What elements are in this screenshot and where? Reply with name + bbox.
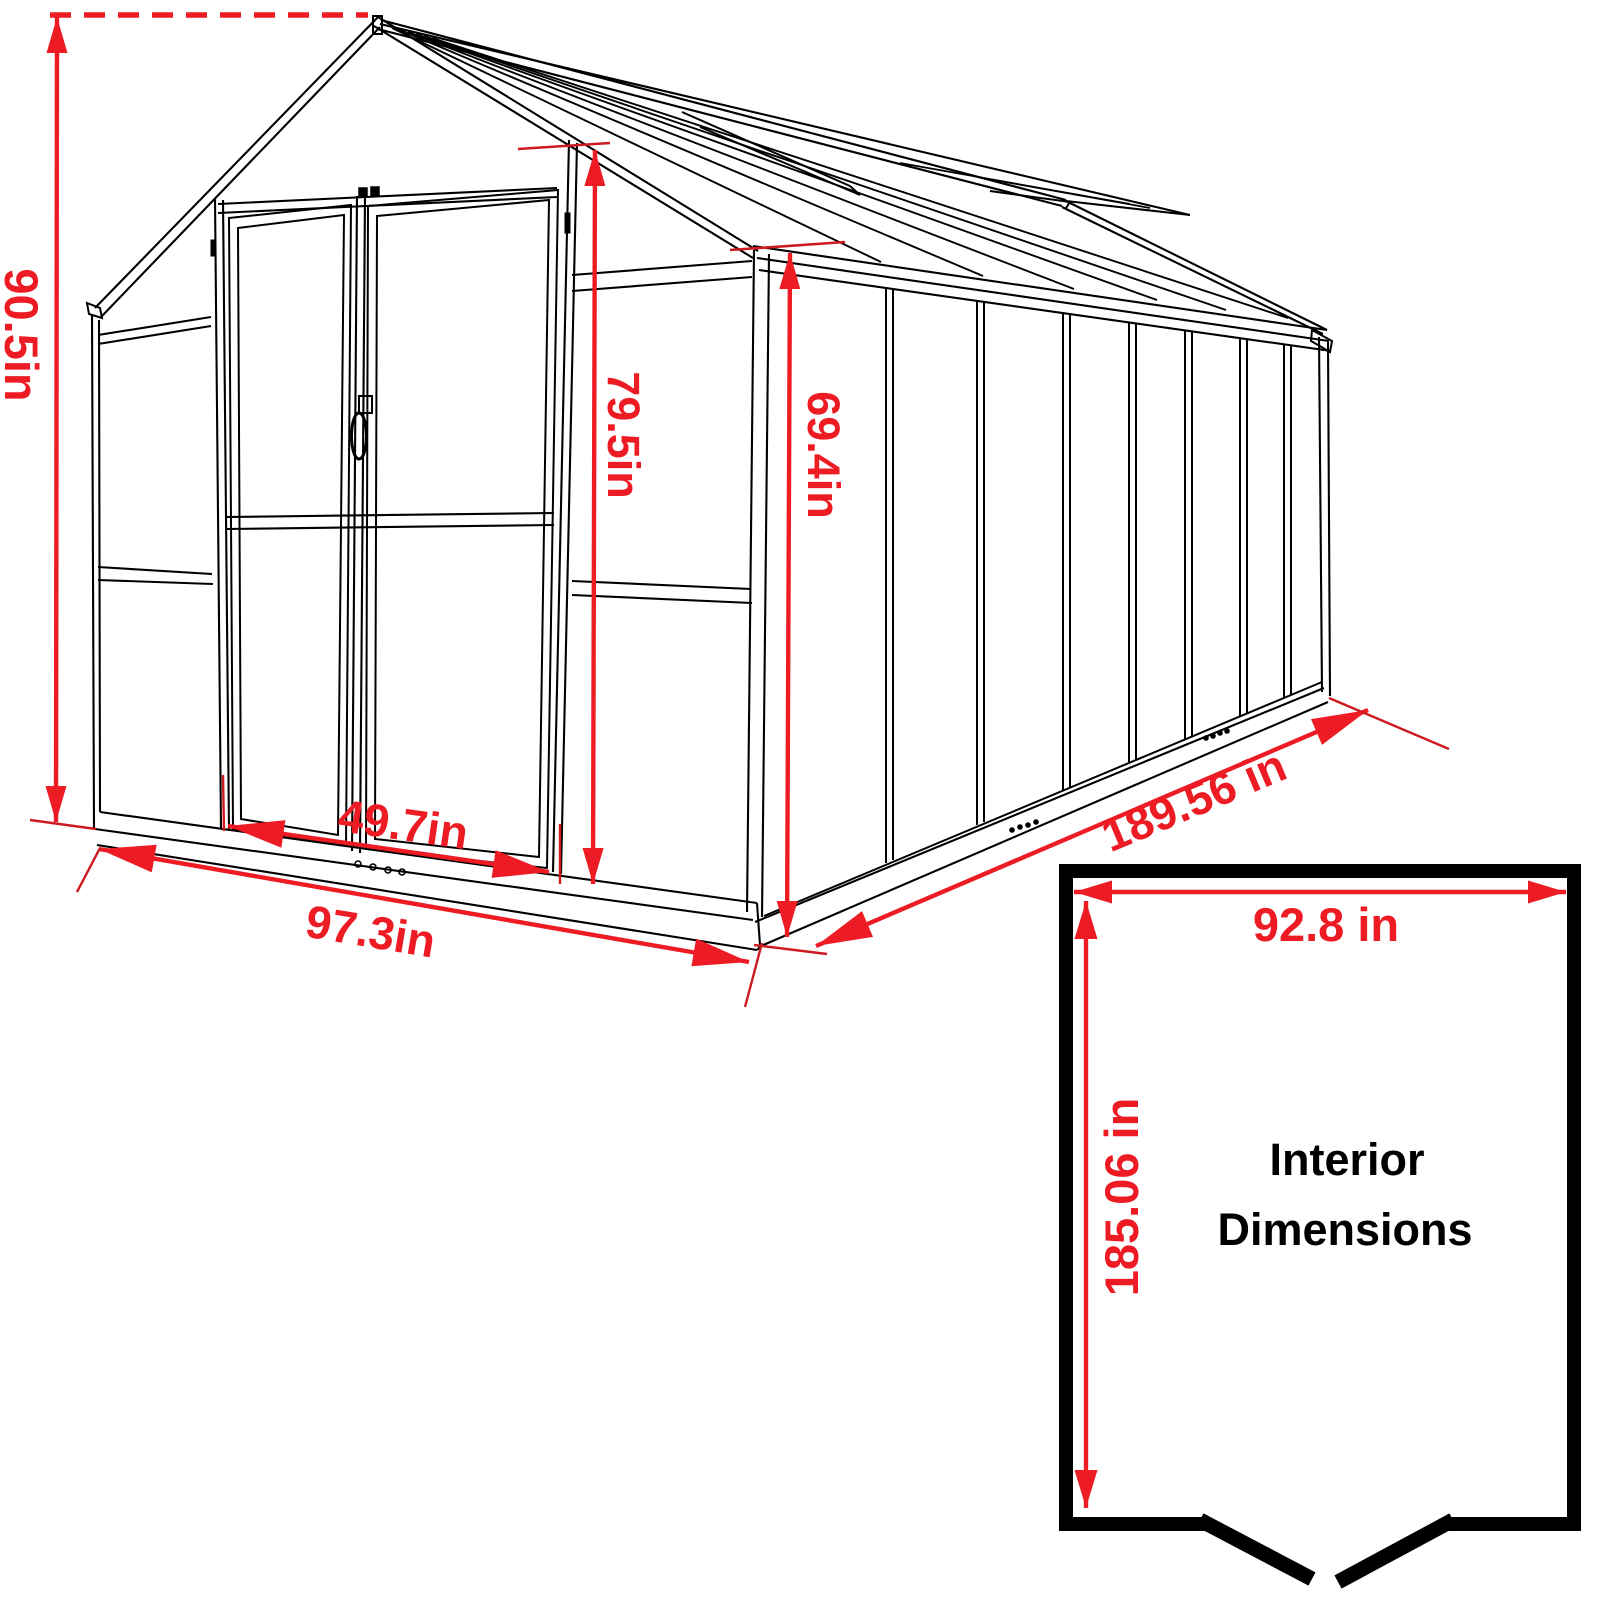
svg-text:92.8 in: 92.8 in	[1253, 898, 1399, 951]
svg-text:Dimensions: Dimensions	[1217, 1204, 1472, 1255]
svg-text:79.5in: 79.5in	[598, 371, 649, 499]
svg-text:Interior: Interior	[1269, 1134, 1424, 1185]
svg-text:69.4in: 69.4in	[798, 391, 849, 519]
svg-text:185.06 in: 185.06 in	[1095, 1098, 1148, 1297]
svg-text:90.5in: 90.5in	[0, 268, 48, 401]
